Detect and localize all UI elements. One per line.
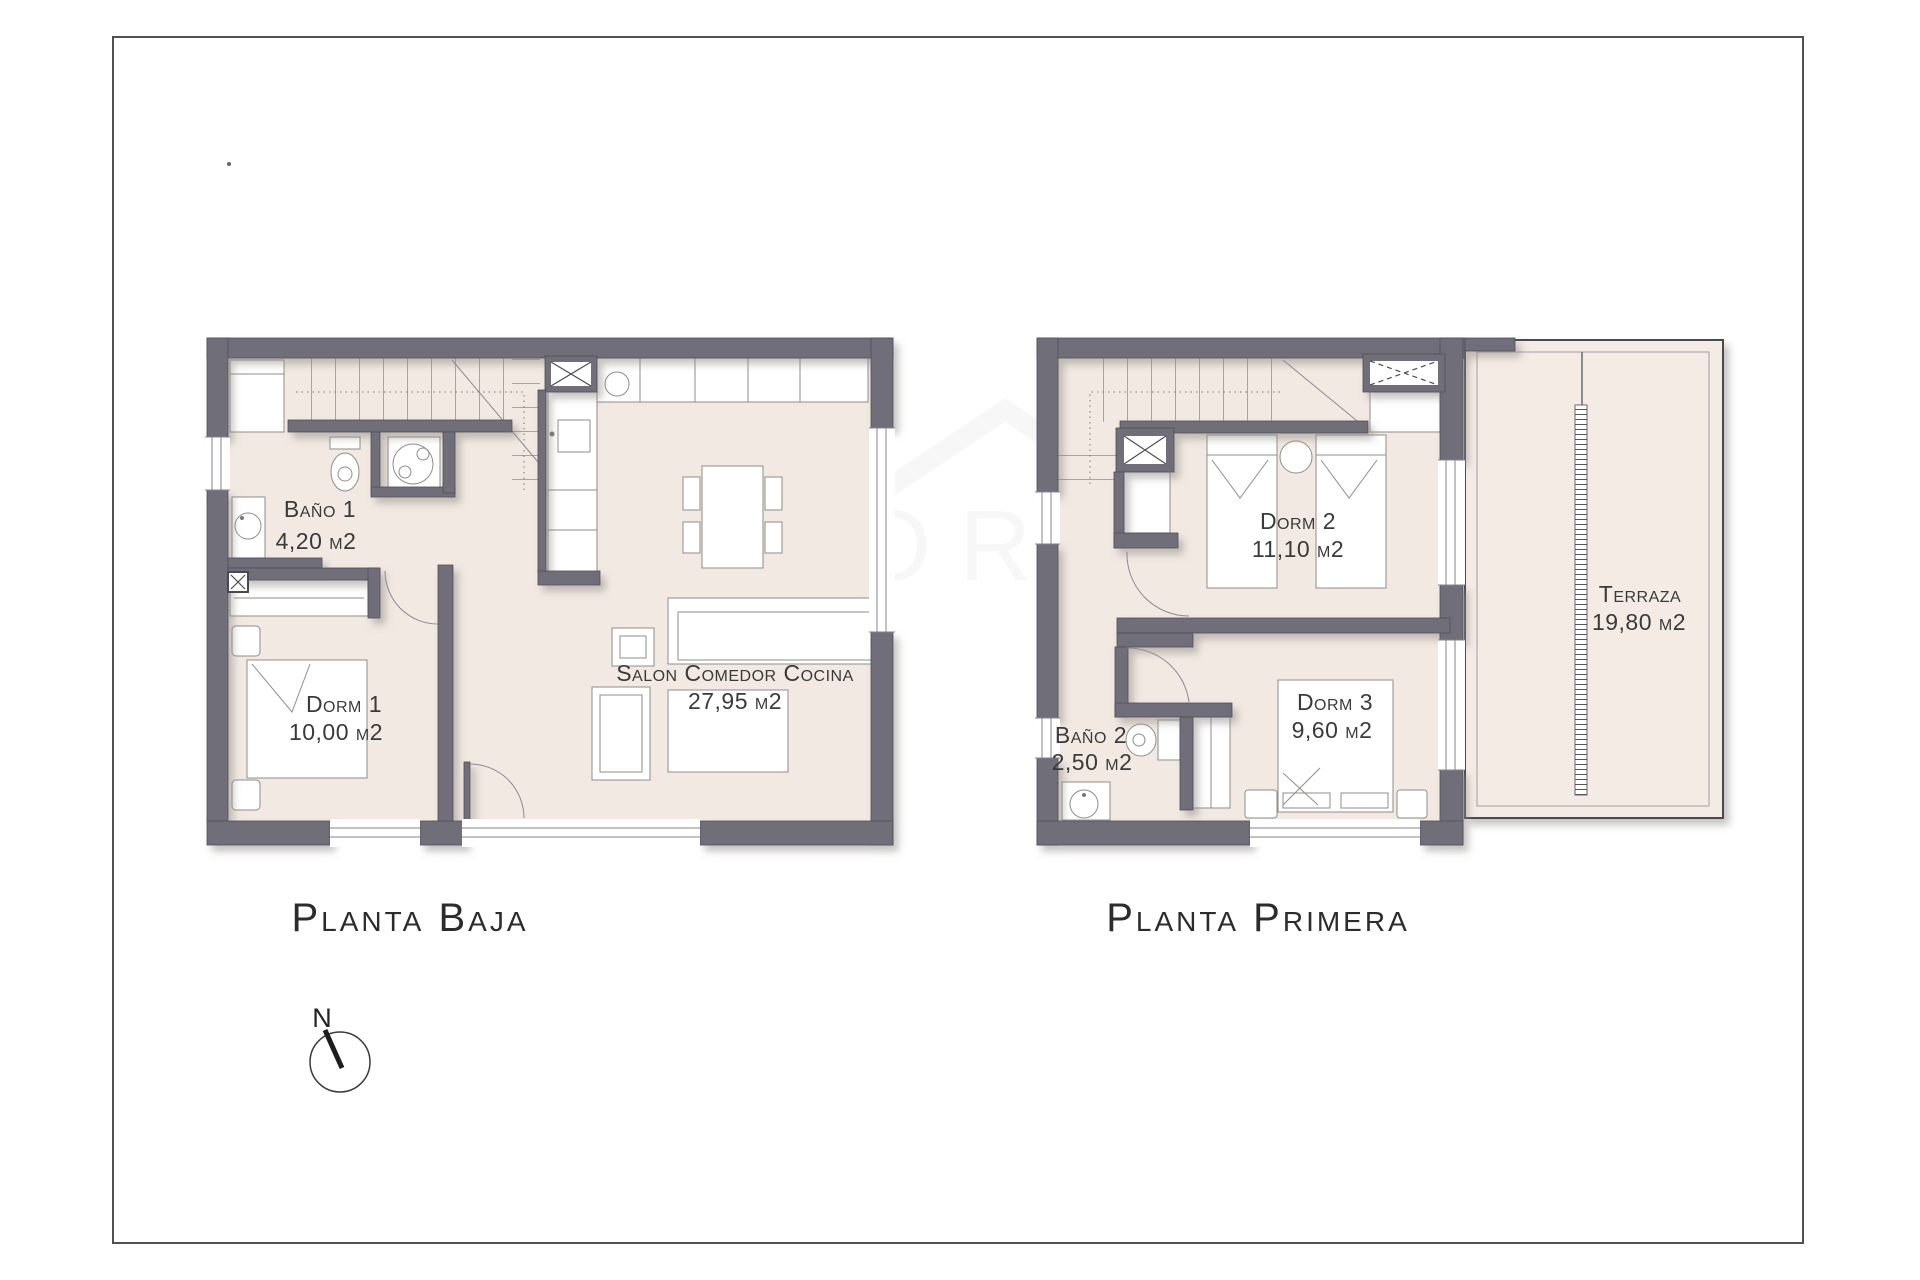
room-label-dorm-3: Dorm 3: [1297, 689, 1373, 715]
room-area-dorm-3: 9,60 m2: [1292, 717, 1373, 743]
nightstand-symbol: [1397, 790, 1427, 818]
floor-plan-sheet: ORT: [0, 0, 1920, 1280]
room-label-bano-1: Baño 1: [284, 496, 356, 522]
room-area-bano-1: 4,20 m2: [276, 528, 357, 554]
nightstand-symbol: [232, 626, 260, 656]
north-compass: N: [310, 1003, 370, 1092]
room-label-salon: Salon Comedor Cocina: [616, 660, 854, 686]
terrace-area: [1465, 340, 1723, 818]
room-label-dorm-2: Dorm 2: [1260, 508, 1336, 534]
room-label-dorm-1: Dorm 1: [306, 691, 382, 717]
toilet-symbol: [330, 437, 360, 491]
floor-plan-drawing: ORT: [0, 0, 1920, 1280]
room-area-bano-2: 2,50 m2: [1052, 749, 1133, 775]
washbasin-symbol: [232, 497, 265, 558]
terrace-rail-symbol: [1575, 352, 1587, 795]
closet-symbol: [1193, 717, 1230, 808]
side-table-symbol: [1280, 441, 1312, 473]
nightstand-symbol: [1245, 790, 1277, 818]
ground-floor-plan: Baño 1 4,20 m2 Dorm 1 10,00 m2 Salon Com…: [205, 338, 895, 940]
stray-dot: [227, 162, 231, 166]
room-area-dorm-2: 11,10 m2: [1252, 536, 1344, 562]
vent-shaft-symbol: [551, 362, 591, 386]
closet-symbol: [1124, 472, 1170, 533]
room-area-salon: 27,95 m2: [688, 688, 782, 714]
room-area-dorm-1: 10,00 m2: [289, 719, 383, 745]
wall-box-symbol: [228, 572, 248, 592]
closet-symbol: [230, 360, 284, 432]
washbasin-symbol: [1062, 782, 1110, 820]
wardrobe-symbol: [230, 580, 368, 616]
plan-title-planta-baja: Planta Baja: [292, 896, 529, 940]
closet-symbol: [1370, 392, 1440, 432]
room-label-terraza: Terraza: [1599, 581, 1681, 607]
room-label-bano-2: Baño 2: [1055, 722, 1127, 748]
north-label: N: [312, 1003, 332, 1033]
compass-needle-icon: [325, 1030, 342, 1068]
nightstand-symbol: [232, 780, 260, 810]
washing-machine-symbol: [388, 437, 440, 490]
room-area-terraza: 19,80 m2: [1592, 609, 1686, 635]
first-floor-plan: Dorm 2 11,10 m2 Baño 2 2,50 m2 Dorm 3 9,…: [1035, 338, 1723, 940]
plan-title-planta-primera: Planta Primera: [1106, 896, 1410, 940]
